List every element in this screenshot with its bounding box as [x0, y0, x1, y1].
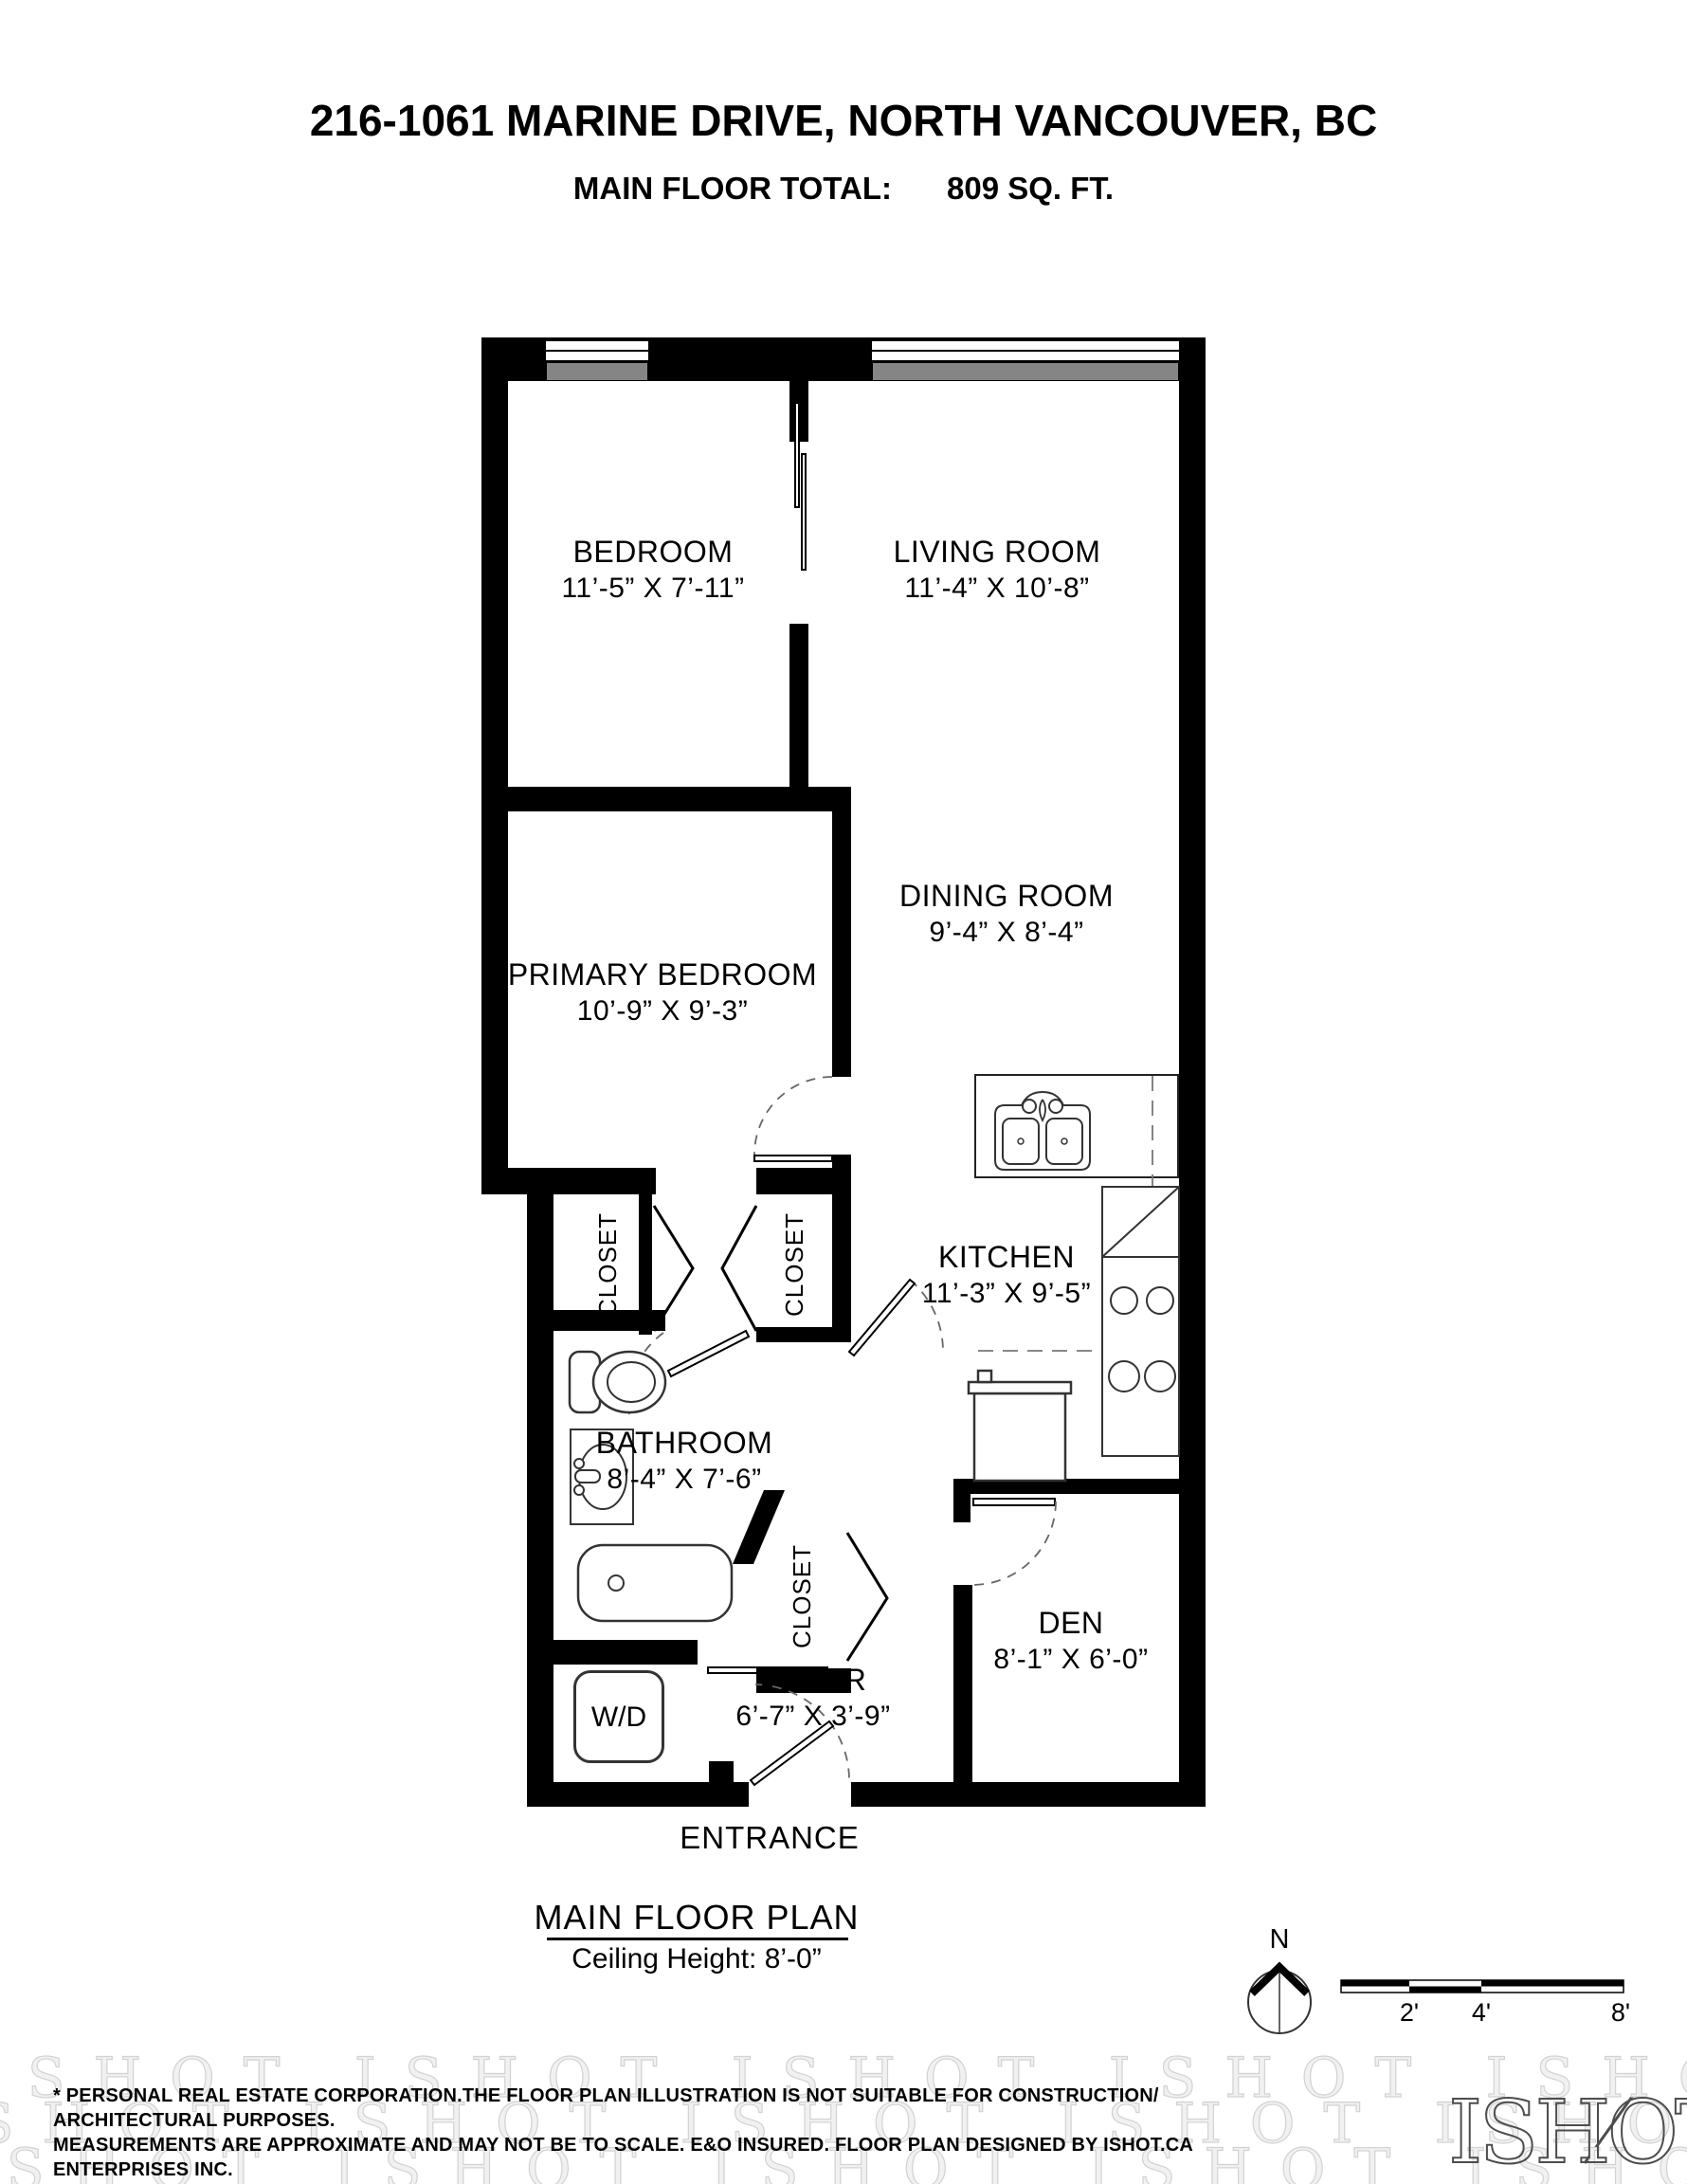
floor-plan-page: 216-1061 MARINE DRIVE, NORTH VANCOUVER, … — [0, 0, 1687, 2184]
room-label-dining-room: DINING ROOM 9’-4” X 8’-4” — [845, 878, 1168, 952]
den-door-arc — [972, 1501, 1056, 1585]
closet-label: CLOSET — [783, 1520, 821, 1672]
disclaimer-line: * PERSONAL REAL ESTATE CORPORATION.THE F… — [53, 2084, 1323, 2133]
north-label: N — [1251, 1924, 1308, 1956]
plan-vector-overlay — [0, 0, 1687, 2184]
ishot-logo: ISHOT — [1448, 2082, 1687, 2183]
room-label-primary-bedroom: PRIMARY BEDROOM 10’-9” X 9’-3” — [501, 956, 824, 1030]
room-label-living-room: LIVING ROOM 11’-4” X 10’-8” — [836, 534, 1158, 608]
scale-bar — [1341, 1980, 1624, 1993]
kitchen-sink — [995, 1092, 1090, 1170]
plan-title: MAIN FLOOR PLAN — [507, 1898, 886, 1938]
ceiling-height: Ceiling Height: 8’-0” — [507, 1943, 886, 1975]
room-label-bathroom: BATHROOM 8’-4” X 7’-6” — [523, 1425, 845, 1499]
toilet-fixture — [570, 1352, 665, 1412]
scale-tick-8ft: 8' — [1592, 1998, 1649, 2028]
washer-dryer: W/D — [573, 1670, 664, 1763]
closet-label: CLOSET — [589, 1189, 626, 1340]
closet-label: CLOSET — [775, 1189, 813, 1340]
fridge-fixture — [969, 1371, 1071, 1481]
scale-tick-2ft: 2' — [1381, 1998, 1438, 2028]
disclaimer: * PERSONAL REAL ESTATE CORPORATION.THE F… — [53, 2084, 1323, 2184]
wall-diagonal — [733, 1490, 785, 1564]
north-arrow-icon — [1248, 1967, 1311, 2033]
plan-title-underline — [547, 1938, 848, 1940]
closet3-bifold-door — [847, 1533, 887, 1661]
scale-tick-4ft: 4' — [1453, 1998, 1510, 2028]
entrance-label: ENTRANCE — [627, 1820, 912, 1856]
room-label-kitchen: KITCHEN 11’-3” X 9’-5” — [845, 1239, 1168, 1313]
bathtub-fixture — [578, 1545, 732, 1621]
disclaimer-line: MEASUREMENTS ARE APPROXIMATE AND MAY NOT… — [53, 2133, 1323, 2182]
bathroom-door-leaf — [668, 1331, 749, 1376]
room-label-foyer: FOYER 6’-7” X 3’-9” — [652, 1662, 974, 1736]
closet2-bifold-door — [722, 1206, 756, 1331]
primary-door-arc — [754, 1077, 832, 1155]
room-label-bedroom: BEDROOM 11’-5” X 7’-11” — [492, 534, 814, 608]
closet1-bifold-door — [654, 1206, 693, 1331]
